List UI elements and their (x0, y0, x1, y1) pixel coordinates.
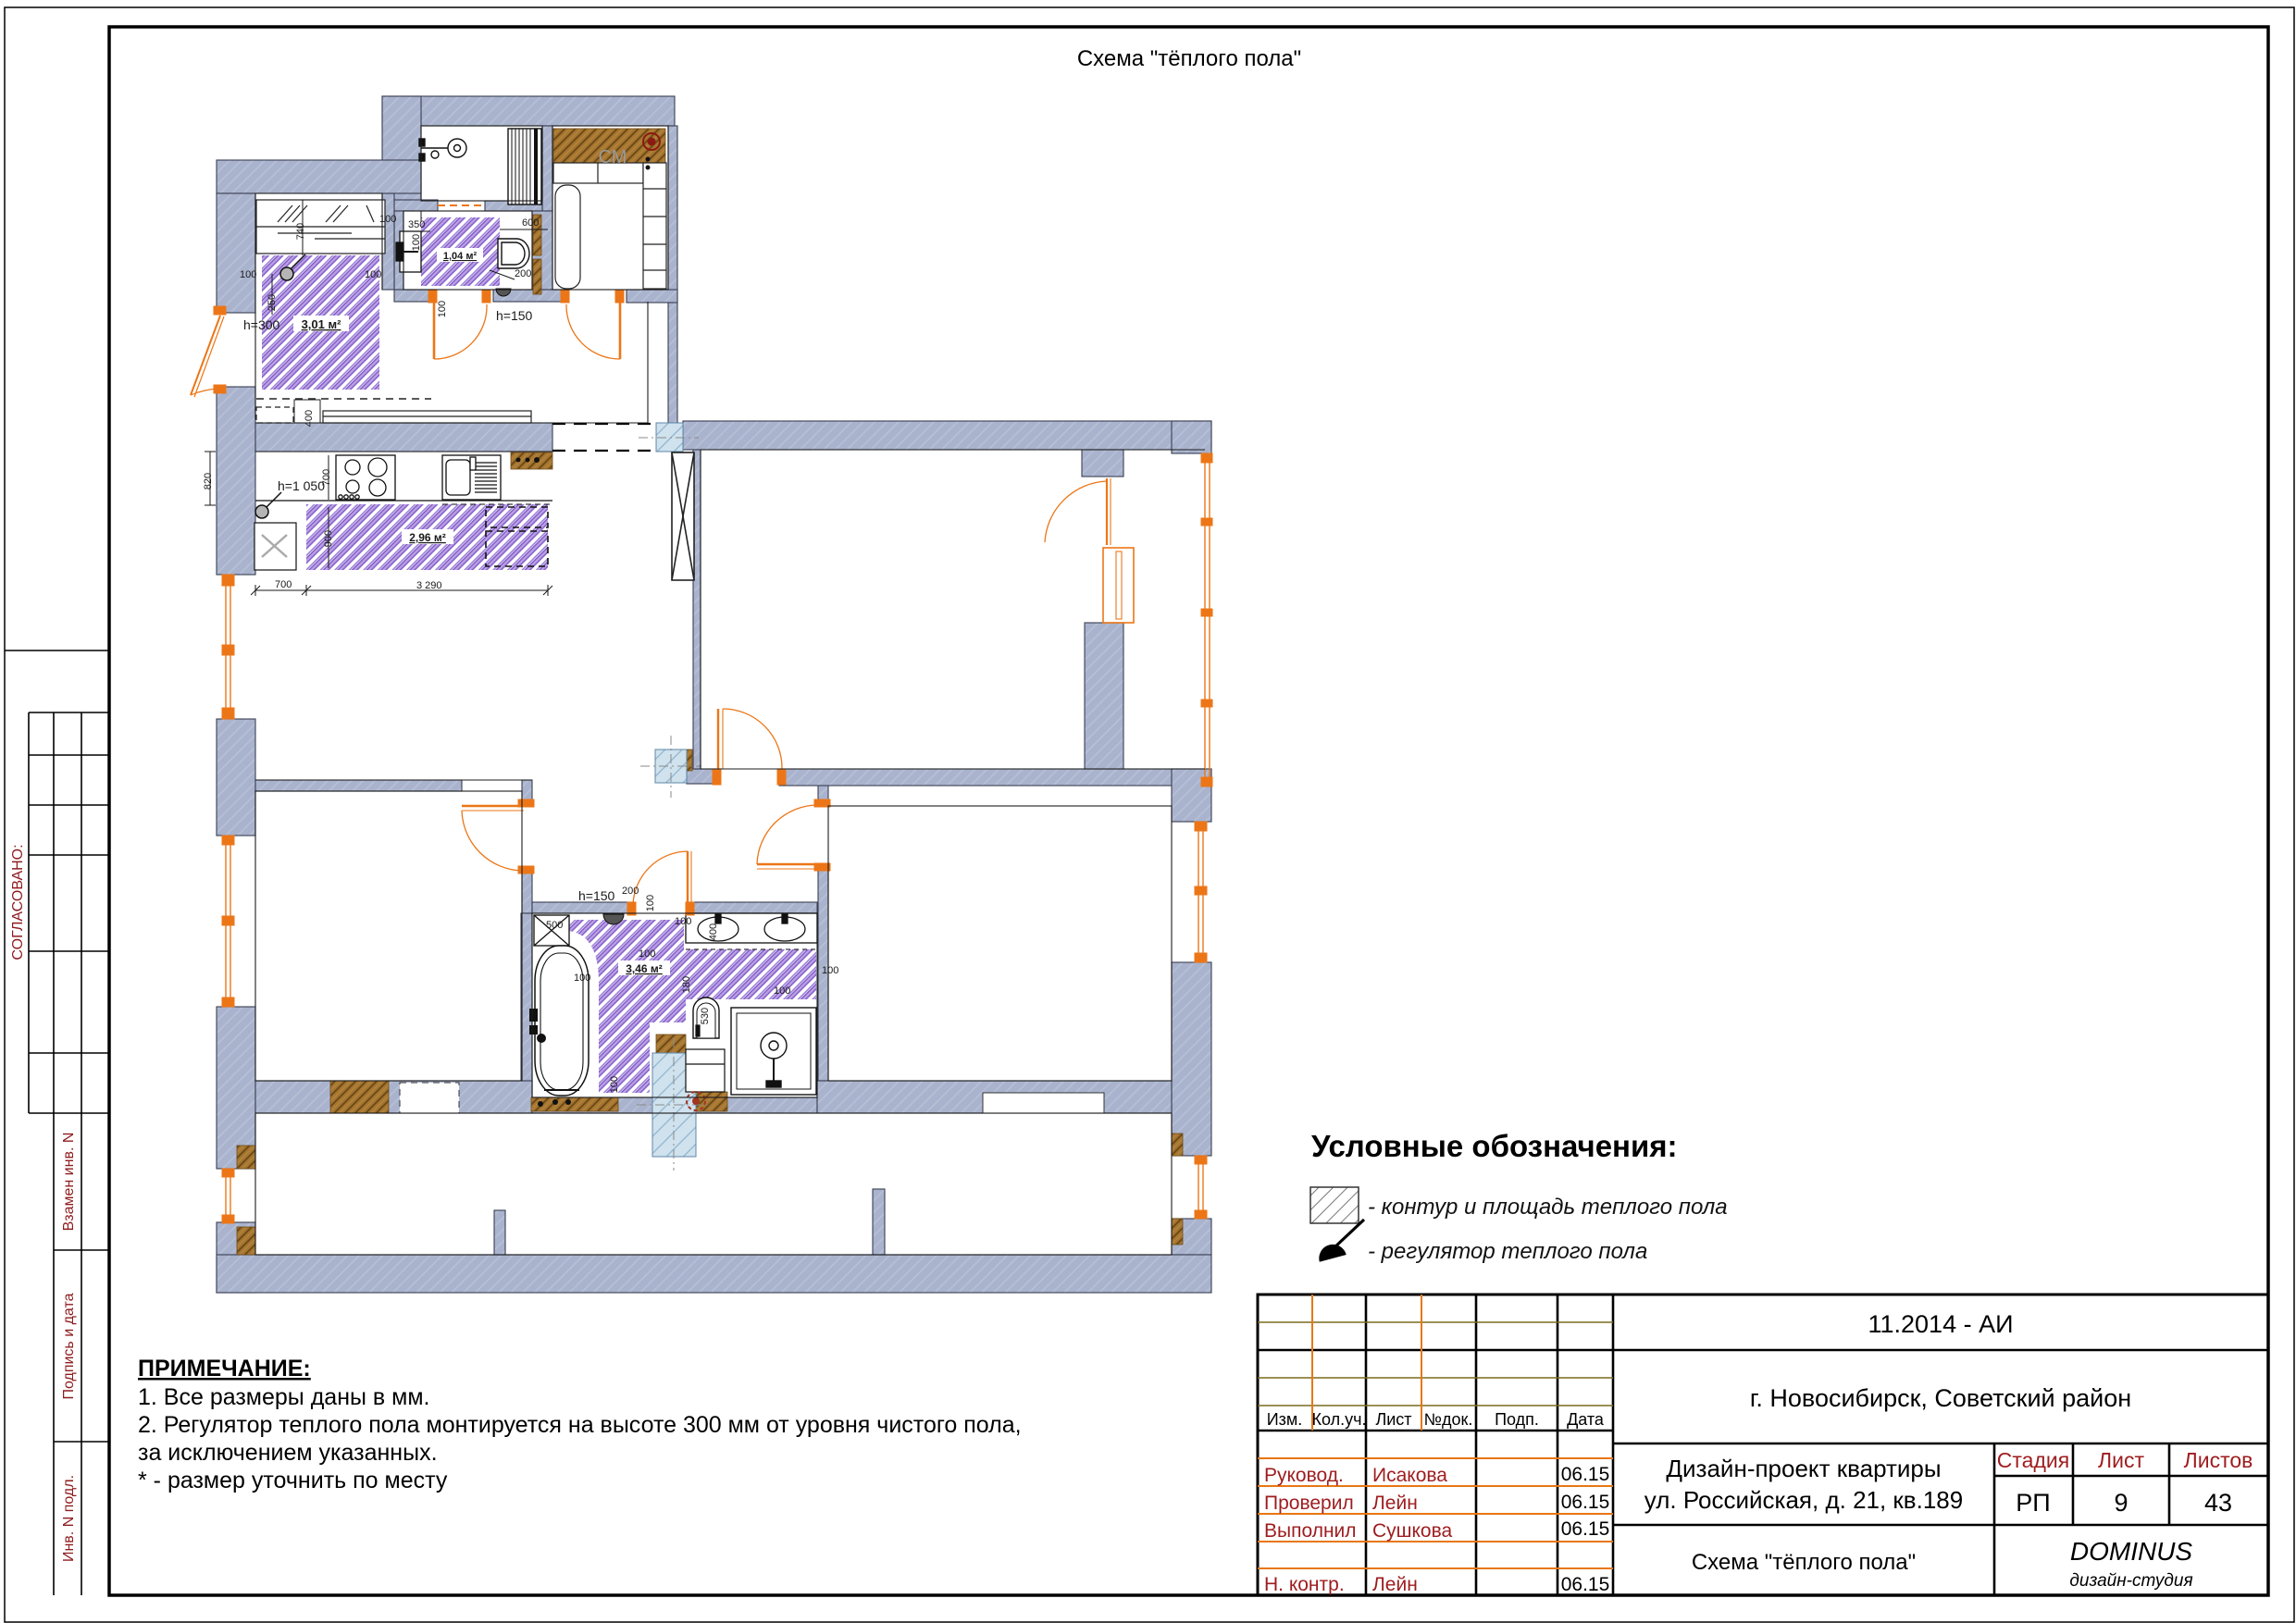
svg-text:100: 100 (609, 1076, 620, 1093)
svg-text:100: 100 (645, 895, 656, 911)
svg-text:Лейн: Лейн (1372, 1574, 1418, 1595)
svg-text:43: 43 (2204, 1489, 2232, 1517)
svg-text:- контур и площадь теплого пол: - контур и площадь теплого пола (1368, 1195, 1728, 1220)
svg-text:2,96 м²: 2,96 м² (409, 531, 446, 544)
svg-text:дизайн-студия: дизайн-студия (2069, 1571, 2192, 1591)
svg-text:г. Новосибирск, Советский райо: г. Новосибирск, Советский район (1750, 1384, 2131, 1412)
svg-text:530: 530 (700, 1008, 711, 1024)
svg-text:Схема "тёплого пола": Схема "тёплого пола" (1692, 1550, 1916, 1575)
svg-text:820: 820 (203, 473, 214, 489)
svg-text:06.15: 06.15 (1561, 1518, 1610, 1540)
svg-text:2. Регулятор теплого пола монт: 2. Регулятор теплого пола монтируется на… (138, 1412, 1022, 1438)
svg-text:600: 600 (522, 217, 539, 229)
svg-text:Лист: Лист (2098, 1448, 2144, 1472)
svg-text:РП: РП (2016, 1489, 2050, 1517)
svg-text:Лейн: Лейн (1372, 1493, 1418, 1514)
svg-text:Условные обозначения:: Условные обозначения: (1311, 1129, 1678, 1163)
svg-text:100: 100 (675, 916, 691, 927)
svg-text:100: 100 (365, 269, 381, 280)
svg-text:Взамен инв. N: Взамен инв. N (61, 1133, 77, 1232)
svg-text:DOMINUS: DOMINUS (2070, 1537, 2193, 1566)
svg-text:h=150: h=150 (496, 308, 533, 323)
svg-text:06.15: 06.15 (1561, 1464, 1610, 1485)
svg-text:100: 100 (240, 269, 256, 280)
svg-text:100: 100 (774, 985, 790, 997)
svg-text:3 290: 3 290 (416, 580, 442, 591)
svg-text:Дизайн-проект квартиры: Дизайн-проект квартиры (1666, 1455, 1941, 1482)
svg-text:100: 100 (639, 948, 655, 960)
svg-text:Проверил: Проверил (1264, 1493, 1354, 1514)
svg-text:№док.: №док. (1424, 1410, 1473, 1429)
svg-text:06.15: 06.15 (1561, 1574, 1610, 1595)
svg-text:100: 100 (437, 301, 448, 317)
svg-text:Выполнил: Выполнил (1264, 1520, 1357, 1542)
svg-text:h=150: h=150 (578, 888, 615, 903)
svg-text:Подп.: Подп. (1495, 1410, 1539, 1429)
svg-text:Подпись и дата: Подпись и дата (61, 1293, 77, 1399)
svg-text:9: 9 (2114, 1489, 2128, 1517)
svg-text:11.2014 - АИ: 11.2014 - АИ (1868, 1310, 2013, 1338)
svg-text:180: 180 (681, 976, 692, 993)
svg-text:СМ: СМ (599, 147, 627, 167)
svg-text:Стадия: Стадия (1997, 1448, 2069, 1472)
svg-text:ПРИМЕЧАНИЕ:: ПРИМЕЧАНИЕ: (138, 1356, 311, 1381)
svg-text:ул. Российская, д. 21, кв.189: ул. Российская, д. 21, кв.189 (1644, 1486, 1963, 1514)
svg-text:Исакова: Исакова (1372, 1465, 1447, 1486)
svg-text:Руковод.: Руковод. (1264, 1465, 1344, 1486)
svg-text:- регулятор теплого пола: - регулятор теплого пола (1368, 1239, 1647, 1264)
svg-text:Н. контр.: Н. контр. (1264, 1574, 1345, 1595)
svg-text:700: 700 (275, 579, 292, 590)
svg-text:h=300: h=300 (243, 317, 280, 332)
svg-text:Инв. N подл.: Инв. N подл. (61, 1475, 77, 1562)
svg-text:350: 350 (408, 219, 425, 230)
svg-text:Схема "тёплого пола": Схема "тёплого пола" (1077, 46, 1301, 71)
svg-text:700: 700 (321, 469, 332, 486)
svg-text:3,46 м²: 3,46 м² (626, 962, 663, 975)
svg-text:за исключением указанных.: за исключением указанных. (138, 1440, 438, 1466)
svg-text:Кол.уч.: Кол.уч. (1312, 1410, 1367, 1429)
svg-text:100: 100 (411, 234, 422, 251)
svg-text:100: 100 (822, 965, 838, 976)
svg-text:h=1 050: h=1 050 (278, 478, 325, 493)
svg-text:Лист: Лист (1375, 1410, 1411, 1429)
svg-text:Листов: Листов (2184, 1448, 2253, 1472)
svg-text:* - размер уточнить по месту: * - размер уточнить по месту (138, 1468, 448, 1493)
svg-text:500: 500 (546, 920, 563, 931)
svg-text:740: 740 (295, 223, 306, 240)
svg-text:Изм.: Изм. (1267, 1410, 1303, 1429)
svg-text:Сушкова: Сушкова (1372, 1520, 1453, 1542)
svg-text:400: 400 (708, 923, 719, 940)
svg-text:400: 400 (304, 410, 315, 427)
svg-text:1. Все размеры даны в мм.: 1. Все размеры даны в мм. (138, 1384, 429, 1410)
svg-text:3,01 м²: 3,01 м² (302, 317, 342, 331)
svg-text:Дата: Дата (1567, 1410, 1605, 1429)
svg-text:200: 200 (622, 886, 639, 897)
svg-text:100: 100 (574, 973, 590, 984)
svg-text:1,04 м²: 1,04 м² (443, 251, 478, 262)
svg-text:200: 200 (515, 268, 531, 279)
svg-text:СОГЛАСОВАНО:: СОГЛАСОВАНО: (10, 844, 26, 960)
svg-text:06.15: 06.15 (1561, 1492, 1610, 1513)
